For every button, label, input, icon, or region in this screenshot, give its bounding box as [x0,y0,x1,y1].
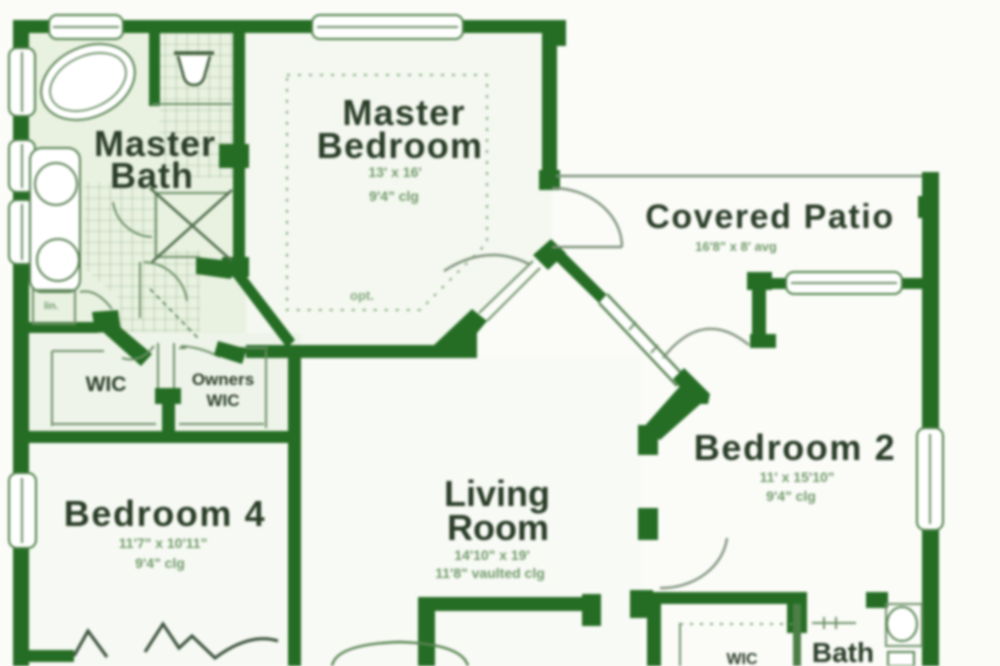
svg-text:9'4" clg: 9'4" clg [369,188,419,204]
svg-text:Room: Room [447,507,549,548]
svg-text:9'4" clg: 9'4" clg [766,488,816,504]
svg-text:11'8" vaulted clg: 11'8" vaulted clg [435,565,545,581]
svg-text:Bath: Bath [110,155,194,196]
svg-text:Bath: Bath [812,637,874,666]
svg-text:Bedroom: Bedroom [317,125,483,166]
svg-text:13' x 16': 13' x 16' [368,164,421,180]
svg-text:lin.: lin. [44,301,59,312]
svg-text:WIC: WIC [206,391,239,410]
svg-text:11' x 15'10": 11' x 15'10" [760,469,835,485]
svg-text:Bedroom 2: Bedroom 2 [694,427,896,468]
svg-text:14'10" x 19': 14'10" x 19' [454,547,530,563]
svg-text:Covered Patio: Covered Patio [645,198,894,236]
svg-text:WIC: WIC [86,373,127,396]
svg-text:WIC: WIC [726,651,758,666]
svg-text:opt.: opt. [350,288,374,303]
svg-text:16'8" x 8' avg: 16'8" x 8' avg [695,239,777,254]
svg-text:9'4" clg: 9'4" clg [135,555,185,571]
svg-text:Bedroom 4: Bedroom 4 [64,493,266,534]
svg-text:Owners: Owners [192,370,254,389]
svg-text:11'7" x 10'11": 11'7" x 10'11" [119,535,207,551]
